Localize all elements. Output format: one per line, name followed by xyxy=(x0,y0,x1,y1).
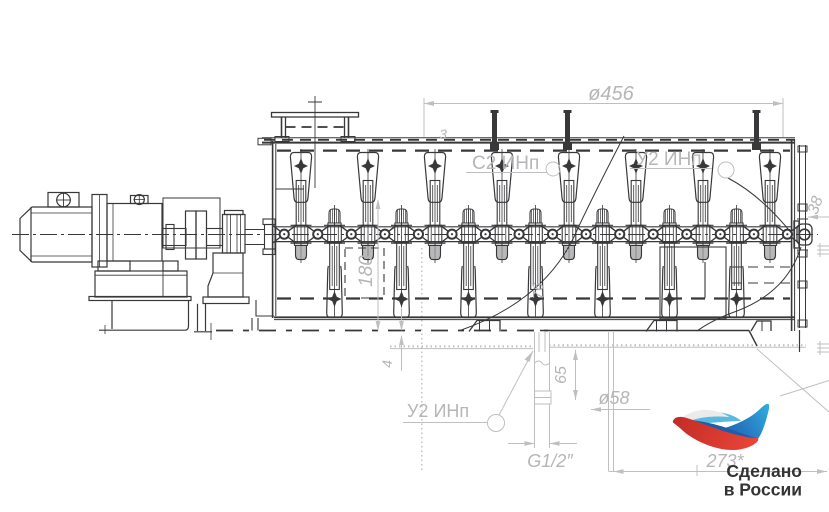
svg-text:180: 180 xyxy=(356,255,377,287)
svg-text:65: 65 xyxy=(553,366,570,384)
svg-text:3: 3 xyxy=(439,126,447,142)
svg-text:в России: в России xyxy=(724,480,802,500)
svg-text:ø58: ø58 xyxy=(598,388,629,408)
svg-text:76: 76 xyxy=(530,282,547,299)
svg-text:Сделано: Сделано xyxy=(726,461,802,481)
svg-text:У2 ИНп: У2 ИНп xyxy=(636,149,702,170)
svg-text:G1/2″: G1/2″ xyxy=(527,451,573,471)
svg-text:С2 ИНп: С2 ИНп xyxy=(472,153,539,174)
svg-text:ø456: ø456 xyxy=(588,83,634,105)
svg-text:38: 38 xyxy=(805,194,827,217)
svg-text:У2 ИНп: У2 ИНп xyxy=(407,401,469,421)
svg-text:4: 4 xyxy=(379,360,395,368)
